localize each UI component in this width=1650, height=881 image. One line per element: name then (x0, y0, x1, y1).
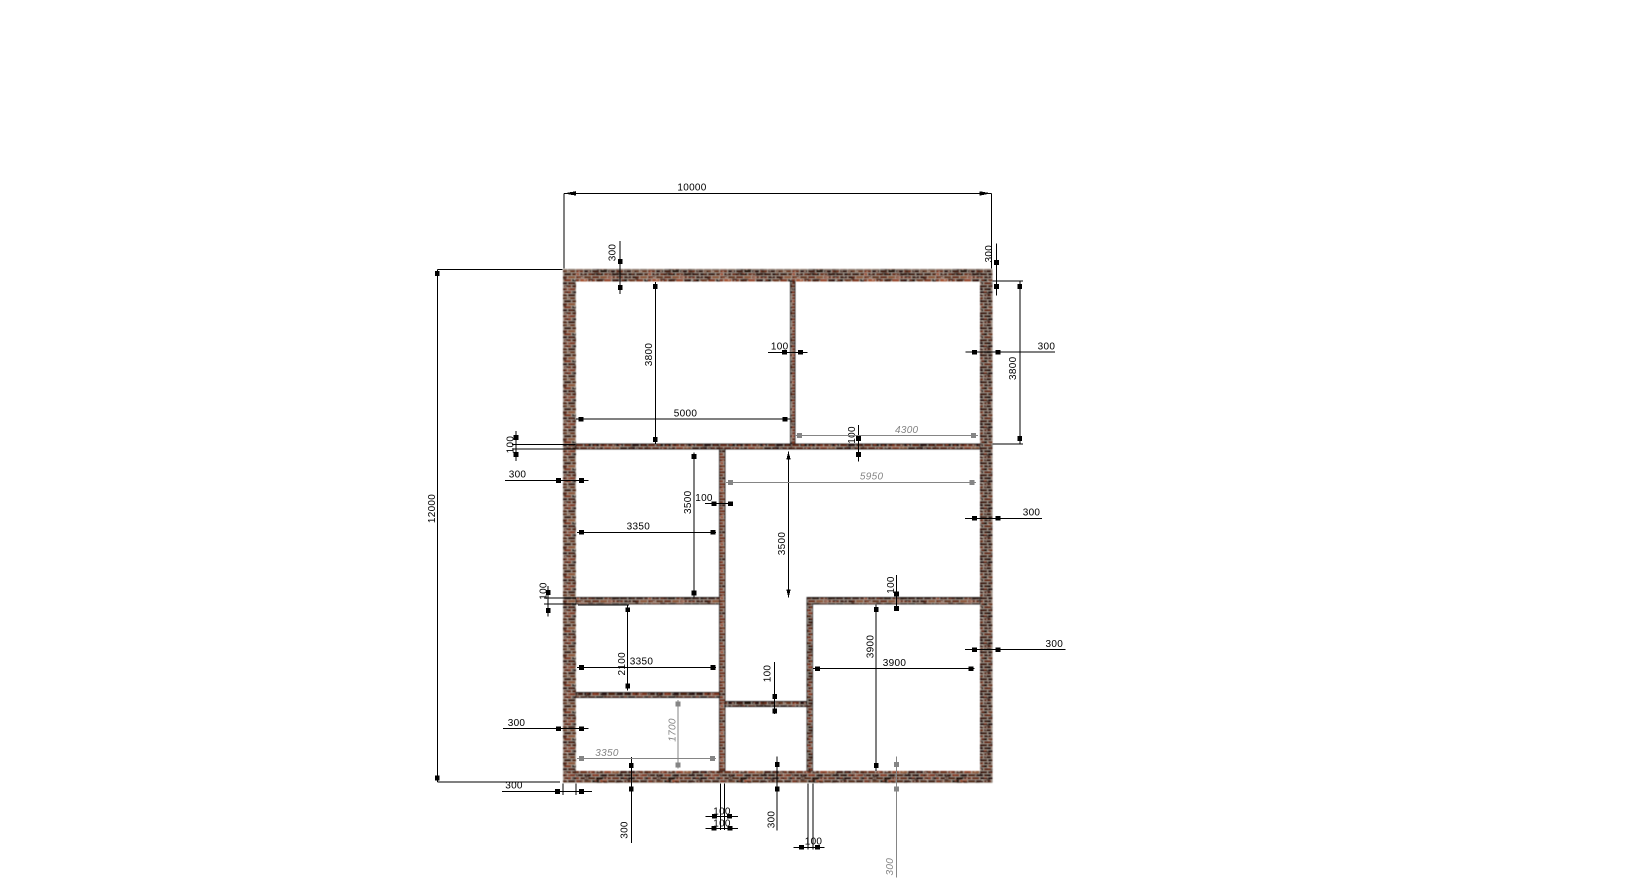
svg-text:2100: 2100 (617, 652, 628, 676)
svg-text:100: 100 (886, 576, 897, 594)
svg-text:100: 100 (539, 582, 550, 600)
svg-text:300: 300 (508, 718, 526, 729)
svg-text:4300: 4300 (895, 425, 919, 436)
svg-text:100: 100 (771, 342, 789, 353)
svg-text:300: 300 (620, 821, 631, 839)
svg-text:3500: 3500 (683, 490, 694, 514)
svg-text:100: 100 (805, 837, 823, 848)
svg-text:100: 100 (695, 493, 713, 504)
svg-text:3350: 3350 (595, 748, 619, 759)
svg-text:12000: 12000 (427, 494, 438, 523)
svg-text:300: 300 (1038, 341, 1056, 352)
svg-text:3800: 3800 (1008, 356, 1019, 380)
svg-text:3900: 3900 (865, 635, 876, 659)
svg-text:3350: 3350 (627, 522, 651, 533)
svg-text:300: 300 (1023, 508, 1041, 519)
svg-text:5950: 5950 (860, 472, 884, 483)
svg-text:3800: 3800 (644, 343, 655, 367)
svg-text:100: 100 (506, 436, 517, 454)
svg-text:300: 300 (608, 244, 619, 262)
svg-text:3350: 3350 (630, 657, 654, 668)
svg-text:300: 300 (1046, 639, 1064, 650)
svg-text:1700: 1700 (668, 718, 679, 742)
svg-text:100: 100 (713, 819, 731, 830)
svg-text:5000: 5000 (674, 408, 698, 419)
svg-text:300: 300 (509, 470, 527, 481)
svg-text:300: 300 (505, 781, 523, 792)
svg-text:300: 300 (766, 811, 777, 829)
svg-text:100: 100 (713, 807, 731, 818)
svg-text:100: 100 (847, 426, 858, 444)
svg-text:3900: 3900 (883, 658, 907, 669)
svg-text:300: 300 (885, 858, 896, 876)
svg-text:3500: 3500 (777, 532, 788, 556)
svg-text:100: 100 (763, 665, 774, 683)
svg-text:300: 300 (984, 245, 995, 263)
svg-text:10000: 10000 (677, 183, 706, 194)
